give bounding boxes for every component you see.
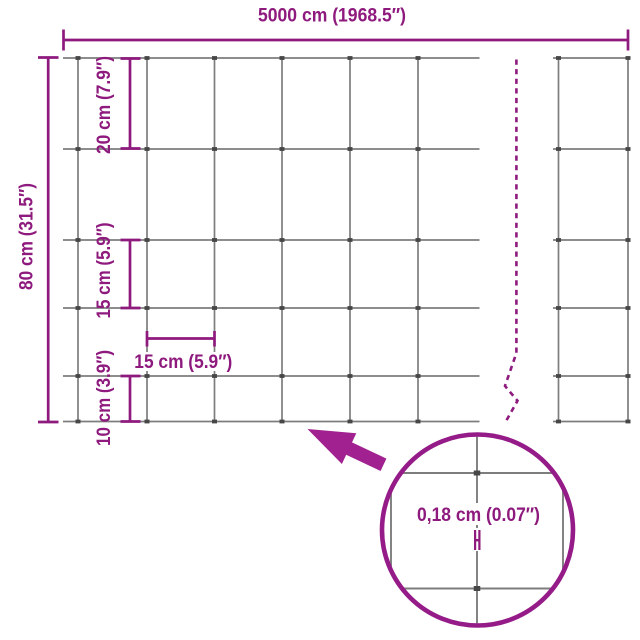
svg-text:0,18 cm (0.07″): 0,18 cm (0.07″)	[417, 505, 540, 526]
svg-text:15 cm (5.9″): 15 cm (5.9″)	[134, 352, 232, 373]
svg-text:80 cm (31.5″): 80 cm (31.5″)	[17, 183, 38, 290]
svg-text:20 cm (7.9″): 20 cm (7.9″)	[94, 56, 115, 154]
svg-text:15 cm (5.9″): 15 cm (5.9″)	[94, 223, 115, 319]
svg-text:5000 cm (1968.5″): 5000 cm (1968.5″)	[258, 6, 406, 27]
svg-text:10 cm (3.9″): 10 cm (3.9″)	[94, 350, 115, 446]
